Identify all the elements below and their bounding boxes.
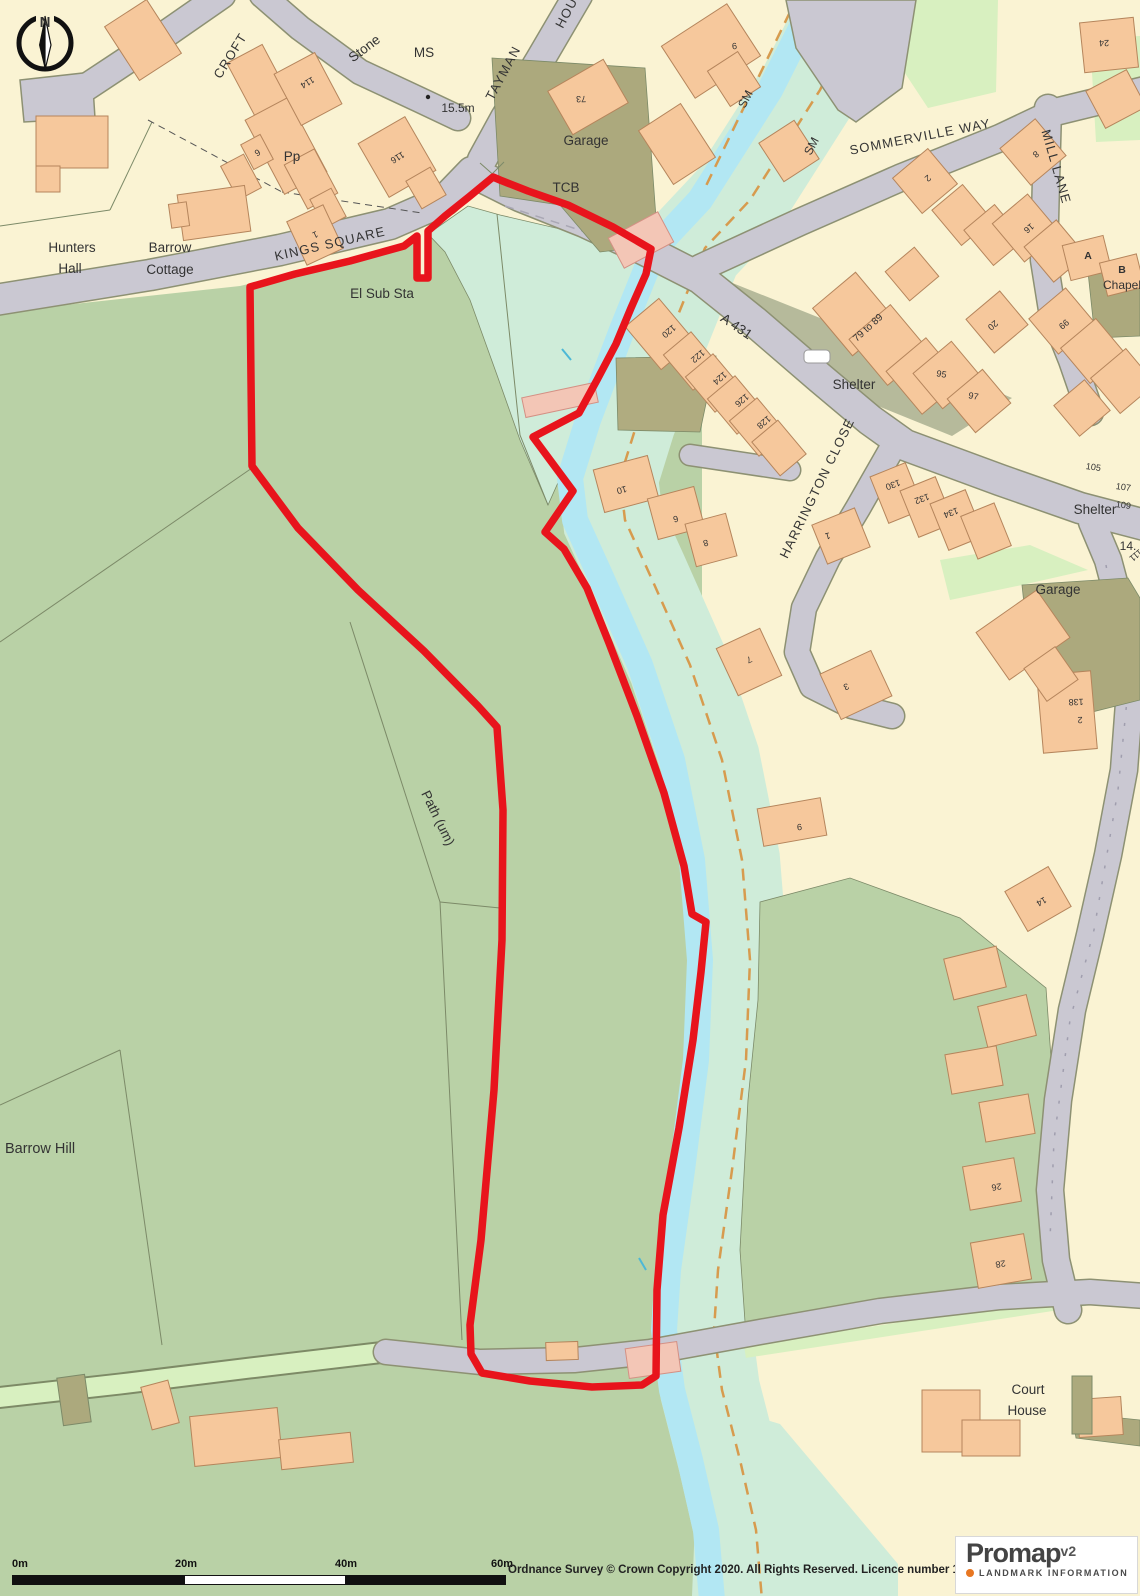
scale-tick: 0m — [12, 1558, 28, 1570]
building — [945, 1046, 1003, 1094]
map-label: Pp — [284, 149, 301, 164]
map-label: MS — [414, 45, 434, 60]
scale-bar-graphic — [12, 1575, 506, 1585]
compass-n-label: N — [40, 14, 51, 31]
scale-tick: 40m — [335, 1558, 357, 1570]
house-number: A — [1084, 250, 1092, 262]
logo-tagline: LANDMARK INFORMATION — [979, 1568, 1128, 1578]
bridge — [1072, 1376, 1092, 1434]
map-stage: NCROFTStoneMS15.5mTAYMANHOUSEGarageTCBSM… — [0, 0, 1140, 1596]
building — [979, 1094, 1035, 1142]
scale-tick: 20m — [175, 1558, 197, 1570]
scale-bar: 0m 20m 40m 60m — [10, 1558, 530, 1592]
house-number: 26 — [991, 1181, 1003, 1193]
map-label: Shelter — [833, 377, 876, 392]
map-label: Garage — [563, 133, 608, 148]
house-number: 73 — [576, 94, 586, 104]
logo-version: v2 — [1061, 1543, 1077, 1559]
building — [190, 1408, 283, 1467]
building — [546, 1341, 579, 1360]
house-number: 2 — [1077, 715, 1082, 725]
promap-logo: Promapv2 LANDMARK INFORMATION — [955, 1536, 1138, 1594]
house-number: 24 — [1099, 38, 1109, 48]
map-label: 15.5m — [441, 101, 474, 115]
map-label: Hall — [58, 261, 81, 276]
logo-dot-icon — [966, 1569, 974, 1577]
map-label: Court — [1011, 1382, 1044, 1397]
house-number: 105 — [1085, 461, 1101, 473]
house-number: 109 — [1115, 499, 1131, 511]
house-number: 28 — [995, 1258, 1007, 1270]
map-label: Barrow — [149, 240, 192, 255]
house-number: B — [1118, 264, 1126, 276]
building — [36, 116, 108, 168]
map-label: Garage — [1035, 582, 1080, 597]
map-label: Hunters — [48, 240, 96, 255]
map-label: Barrow Hill — [5, 1141, 75, 1157]
logo-brand: Promap — [966, 1538, 1061, 1568]
building — [168, 202, 189, 228]
copyright-notice: Ordnance Survey © Crown Copyright 2020. … — [508, 1564, 1010, 1576]
map-label: Chapel — [1103, 278, 1140, 292]
house-number: 97 — [968, 390, 980, 402]
map-canvas[interactable]: NCROFTStoneMS15.5mTAYMANHOUSEGarageTCBSM… — [0, 0, 1140, 1596]
house-number: 138 — [1068, 697, 1083, 708]
map-label: El Sub Sta — [350, 286, 414, 301]
house-number: 95 — [936, 368, 948, 380]
map-label: TCB — [553, 180, 580, 195]
building — [962, 1420, 1020, 1456]
building — [36, 166, 60, 192]
map-label: Shelter — [1074, 502, 1117, 517]
map-label: House — [1007, 1403, 1046, 1418]
bridge — [57, 1374, 91, 1425]
house-number: 107 — [1115, 481, 1131, 493]
map-label: Cottage — [146, 262, 193, 277]
